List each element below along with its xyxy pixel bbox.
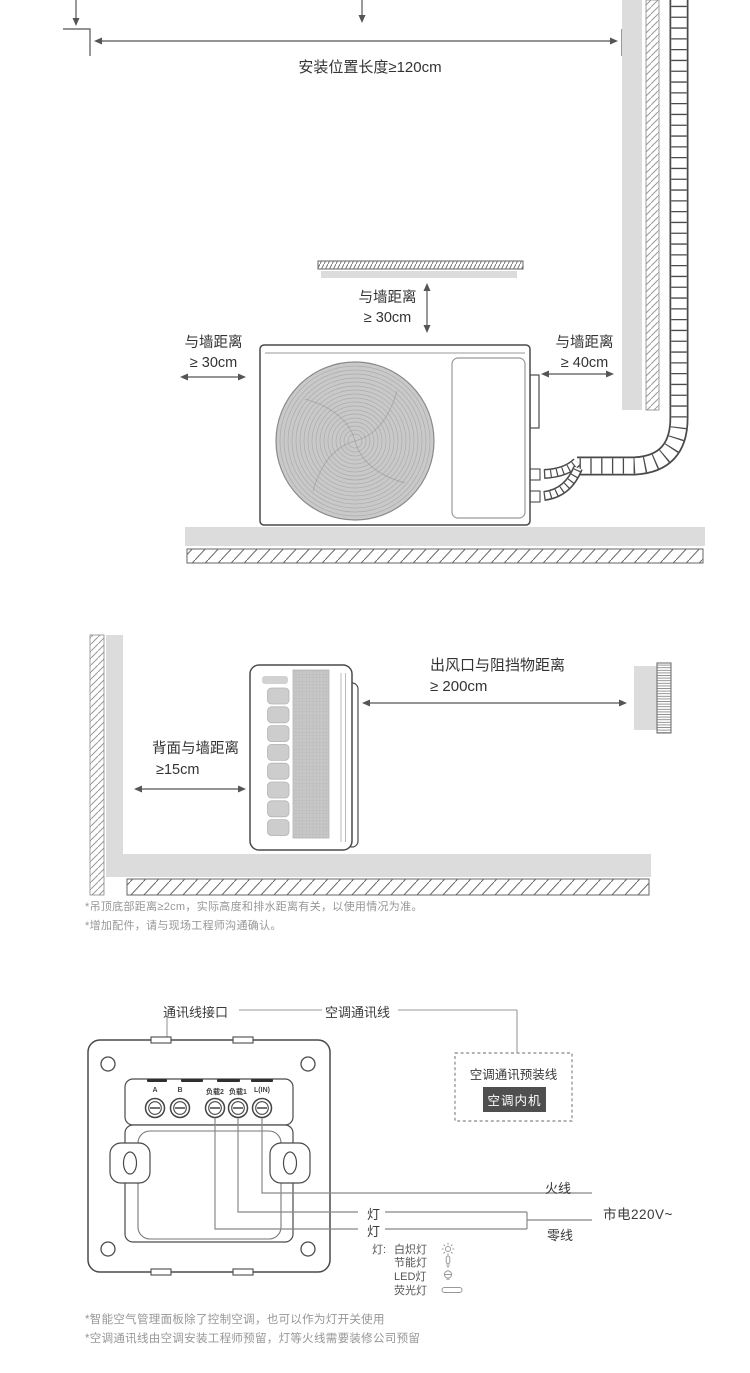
install-length-label: 安装位置长度≥120cm — [250, 58, 490, 78]
indoor-unit-diagram — [0, 630, 750, 920]
fluorescent-tube-icon — [441, 1283, 463, 1297]
indoor-unit-badge: 空调内机 — [483, 1087, 546, 1112]
install-length-dimension — [94, 29, 622, 56]
led-bulb-icon — [441, 1269, 455, 1283]
lamp-label-2: 灯 — [367, 1221, 380, 1240]
wall-panel — [88, 1037, 330, 1275]
comm-line-label: 空调通讯线 — [325, 1002, 390, 1021]
left-wall — [90, 635, 123, 895]
indoor-notes: *吊顶底部距离≥2cm，实际高度和排水距离有关，以使用情况为准。 *增加配件，请… — [85, 898, 423, 935]
air-outlet-grille — [293, 670, 329, 838]
floor — [123, 854, 651, 895]
mains-label: 市电220V~ — [603, 1203, 673, 1223]
installation-diagram-page: { "colors": { "line": "#4a4a4a", "dim_li… — [0, 0, 750, 1373]
fan — [276, 362, 434, 520]
legend-prefix: 灯: — [372, 1241, 394, 1257]
unit-hoses — [544, 462, 578, 496]
obstacle — [634, 663, 671, 733]
comm-interface-label: 通讯线接口 — [163, 1002, 228, 1021]
neutral-wire-label: 零线 — [547, 1225, 573, 1244]
top-clearance-label: 与墙距离 ≥ 30cm — [345, 288, 430, 328]
right-clearance-label: 与墙距离 ≥ 40cm — [542, 333, 627, 373]
cfl-icon — [441, 1255, 455, 1269]
preinstalled-line-label: 空调通讯预装线 — [455, 1064, 572, 1083]
right-wall — [622, 0, 659, 410]
pipe-port-2 — [530, 491, 540, 502]
lamp-legend: 灯: 白炽灯 节能灯 LED灯 荧光灯 — [372, 1242, 463, 1296]
floor — [185, 527, 705, 563]
top-partial-dimension-marks — [63, 0, 366, 56]
back-clearance-label: 背面与墙距离 ≥15cm — [152, 739, 239, 781]
indoor-unit-top-view — [250, 665, 358, 850]
panel-body — [125, 1125, 293, 1242]
outlet-clearance-label: 出风口与阻挡物距离 ≥ 200cm — [430, 655, 565, 697]
incandescent-icon — [441, 1242, 455, 1256]
ceiling-bar — [318, 261, 523, 278]
wiring-notes: *智能空气管理面板除了控制空调，也可以作为灯开关使用 *空调通讯线由空调安装工程… — [85, 1311, 420, 1348]
outdoor-unit — [260, 345, 540, 525]
live-wire-label: 火线 — [545, 1178, 571, 1197]
terminal-label-a: A — [149, 1087, 161, 1094]
legend-label: 荧光灯 — [394, 1282, 441, 1298]
unit-side-panel — [452, 358, 525, 518]
side-tab — [530, 375, 539, 428]
pipe-port-1 — [530, 469, 540, 480]
legend-row: 荧光灯 — [372, 1283, 463, 1297]
terminal-label-b: B — [174, 1087, 186, 1094]
left-clearance-label: 与墙距离 ≥ 30cm — [171, 333, 256, 373]
terminal-label-lin: L(IN) — [248, 1087, 276, 1094]
